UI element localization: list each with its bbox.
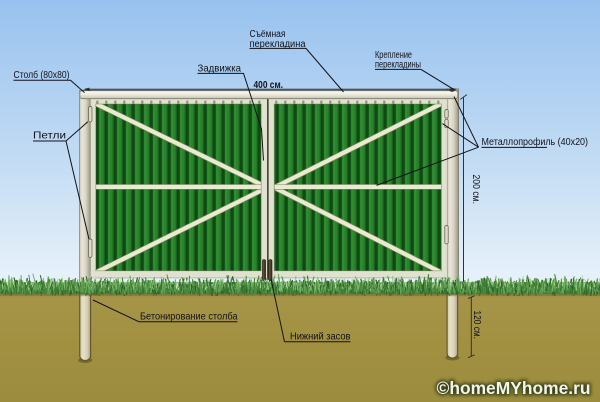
svg-text:Бетонирование столба: Бетонирование столба (140, 310, 238, 322)
svg-text:120 см.: 120 см. (471, 311, 482, 340)
svg-text:Столб (80х80): Столб (80х80) (14, 69, 70, 81)
svg-text:Металлопрофиль (40х20): Металлопрофиль (40х20) (482, 136, 589, 148)
svg-text:400 см.: 400 см. (254, 80, 284, 91)
svg-text:200 см.: 200 см. (470, 175, 481, 205)
svg-text:Нижний засов: Нижний засов (290, 332, 351, 343)
svg-text:Петли: Петли (33, 131, 66, 142)
svg-text:©homeMYhome.ru: ©homeMYhome.ru (437, 378, 591, 398)
